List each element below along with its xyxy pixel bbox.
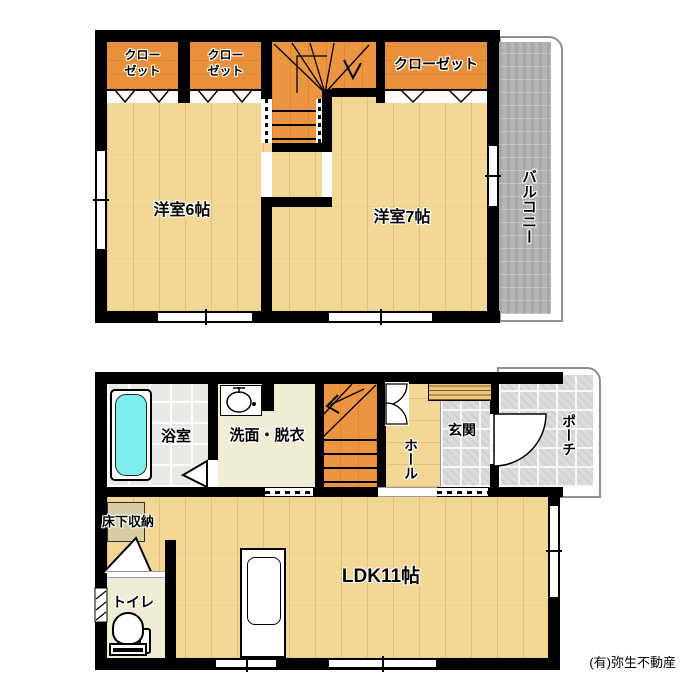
stair2f-right-wall bbox=[322, 89, 332, 151]
stair1f-lines bbox=[322, 383, 377, 487]
balcony-window bbox=[488, 145, 498, 207]
toilet-right-wall bbox=[165, 540, 176, 658]
landing-bottom-wall bbox=[261, 197, 332, 207]
room-divider-wall bbox=[261, 207, 272, 323]
floor-plan: バルコニー クロー ゼット クロー ゼット クローゼット bbox=[0, 0, 680, 700]
room6-door-opening bbox=[261, 152, 272, 197]
room7-label: 洋室7帖 bbox=[352, 203, 452, 227]
ldk-sliding-door bbox=[437, 488, 488, 496]
bathroom-label: 浴室 bbox=[136, 425, 216, 446]
room6-bottom-window bbox=[157, 312, 253, 322]
porch-label: ポーチ bbox=[551, 404, 579, 466]
toilet-icon bbox=[112, 612, 144, 645]
entrance-tiles bbox=[440, 401, 491, 487]
ldk-right-window bbox=[549, 505, 559, 598]
closet-1-folding-door-icon bbox=[107, 89, 178, 103]
closet-2-folding-door-icon bbox=[190, 89, 261, 103]
toilet-door-swing-icon bbox=[96, 534, 156, 576]
toilet-label: トイレ bbox=[103, 592, 163, 612]
stair2f-bottom-wall bbox=[272, 143, 332, 152]
sink-icon bbox=[220, 385, 262, 416]
closet-3-folding-door-icon bbox=[385, 89, 487, 103]
shoe-cabinet-icon bbox=[428, 383, 492, 401]
bath-wash-divider-wall bbox=[208, 383, 218, 460]
mid-horizontal-wall bbox=[107, 487, 563, 497]
hall-label: ホール bbox=[393, 424, 421, 494]
closet-1-label-line1: クロー bbox=[107, 46, 178, 63]
entrance-label: 玄関 bbox=[434, 420, 490, 440]
closet-3-label: クローゼット bbox=[385, 54, 487, 74]
stair2f-open-edge-right bbox=[316, 99, 322, 143]
toilet-door-opening bbox=[107, 571, 165, 578]
closet-2-label-line1: クロー bbox=[190, 46, 261, 63]
closet-divider-wall bbox=[178, 42, 190, 103]
closet-1-label-line2: ゼット bbox=[107, 62, 178, 79]
washroom-label: 洗面・脱衣 bbox=[207, 424, 327, 445]
balcony-label: バルコニー bbox=[511, 138, 539, 274]
room7-bottom-window bbox=[328, 312, 433, 322]
kitchen-counter-icon bbox=[240, 548, 286, 658]
front-door-swing-icon bbox=[492, 411, 550, 469]
stair2f-winder-lines bbox=[272, 42, 376, 97]
ldk-bottom-window-2 bbox=[328, 659, 437, 668]
room6-label: 洋室6帖 bbox=[132, 196, 232, 220]
floor2-top-wall bbox=[95, 30, 500, 42]
company-credit: (有)弥生不動産 bbox=[540, 652, 676, 671]
washroom-stub-wall bbox=[262, 383, 274, 411]
stair2f-run bbox=[272, 97, 322, 143]
toilet-tank-icon bbox=[109, 643, 147, 656]
stair2f-open-edge-left bbox=[261, 99, 272, 143]
room6-left-window bbox=[96, 150, 106, 250]
floor2-bottom-wall bbox=[95, 311, 500, 323]
stairwell-left-wall bbox=[261, 42, 272, 103]
bathroom-door-swing-icon bbox=[180, 458, 210, 490]
underfloor-storage-label: 床下収納 bbox=[93, 511, 163, 530]
washroom-sliding-door bbox=[265, 488, 313, 496]
ldk-bottom-window-1 bbox=[215, 659, 277, 668]
ldk-label: LDK11帖 bbox=[321, 561, 441, 588]
closet-2-label-line2: ゼット bbox=[190, 62, 261, 79]
understairs-double-door-icon bbox=[385, 382, 409, 426]
room7-door-opening bbox=[322, 152, 332, 197]
